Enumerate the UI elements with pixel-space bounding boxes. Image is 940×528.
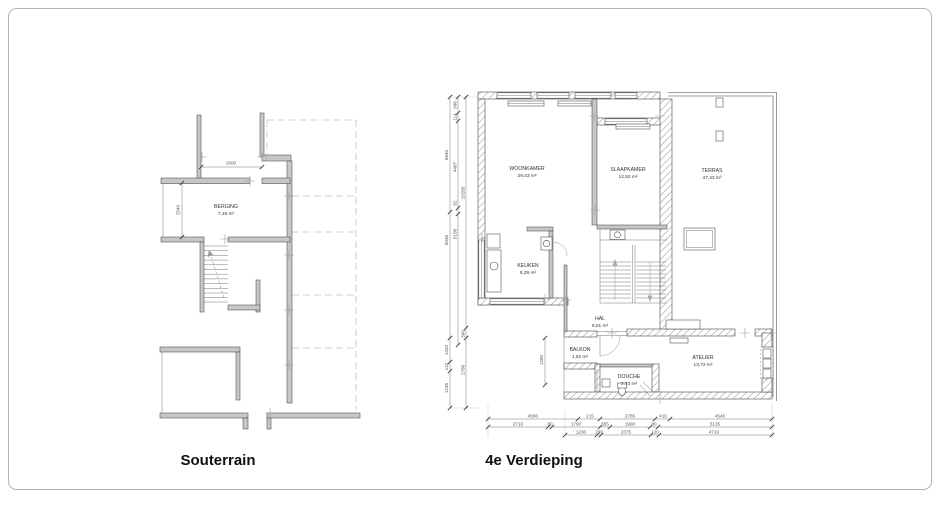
room-area-keuken: 8,29 m² — [520, 270, 537, 276]
room-label-woonkamer: WOONKAMER — [509, 166, 544, 172]
verdieping-walls — [478, 92, 772, 399]
architectural-drawing: 2600 2540 BERGING 7,16 m² Souterrain — [0, 0, 940, 528]
dim-b1-3: 410 — [659, 414, 667, 419]
souterrain-room-labels: BERGING 7,16 m² — [214, 204, 238, 217]
dim-b2-4: 1990 — [625, 422, 636, 427]
room-label-douche: DOUCHE — [618, 374, 641, 380]
dim-b1-4: 4546 — [715, 414, 726, 419]
drawing-sheet: 2600 2540 BERGING 7,16 m² Souterrain — [0, 0, 940, 528]
dim-lm-1: 114 — [453, 113, 458, 121]
verdieping-windows — [479, 93, 774, 380]
dim-lm-2: 4487 — [453, 161, 458, 172]
dim-lo-0: 5640 — [444, 149, 449, 160]
dim-balkon: 1280 — [539, 354, 544, 365]
dim-b2-6: 5135 — [710, 422, 721, 427]
verdieping-wall-marks — [477, 111, 776, 404]
room-label-atelier: ATELIER — [692, 355, 713, 361]
room-label-keuken: KEUKEN — [517, 263, 539, 269]
souterrain-wall-marks — [197, 152, 294, 418]
dim-b2-0: 2710 — [513, 422, 524, 427]
plan-title-verdieping: 4e Verdieping — [485, 452, 583, 469]
room-label-berging: BERGING — [214, 204, 238, 210]
room-area-balkon: 1,62 m² — [572, 354, 589, 360]
souterrain-dashed-outline — [267, 120, 356, 410]
plan-title-souterrain: Souterrain — [180, 452, 255, 469]
dim-b2-2: 1790 — [571, 422, 582, 427]
dim-lo-4: 1245 — [444, 382, 449, 393]
dim-li-0: 10285 — [461, 186, 466, 199]
radiators — [508, 101, 650, 129]
sheet-frame — [9, 9, 932, 490]
dim-souterrain-width: 2600 — [226, 161, 237, 166]
room-area-woonkamer: 29,43 m² — [518, 173, 537, 179]
dim-lm-4: 5108 — [453, 228, 458, 239]
dim-lo-2: 1420 — [444, 344, 449, 355]
dim-b3-2: 2375 — [621, 430, 632, 435]
room-label-balkon: BALKON — [569, 347, 590, 353]
dim-lm-0: 996 — [453, 101, 458, 109]
dim-b3-4: 4710 — [709, 430, 720, 435]
room-area-terras: 47,43 m² — [703, 175, 722, 181]
dim-b2-5: 80 — [651, 422, 657, 427]
dim-b1-0: 4580 — [528, 414, 539, 419]
room-area-atelier: 13,72 m² — [694, 362, 713, 368]
dim-b3-3: 120 — [651, 430, 659, 435]
room-area-douche: 2,73 m² — [621, 381, 638, 387]
dim-lo-3: 122 — [444, 362, 449, 370]
verdieping-plan: 4580 215 2785 410 4546 2710 80 1790 355 … — [444, 92, 777, 469]
room-label-hal: HAL — [595, 316, 605, 322]
souterrain-plan: 2600 2540 BERGING 7,16 m² Souterrain — [160, 113, 360, 469]
room-area-slaapkamer: 12,52 m² — [619, 174, 638, 180]
room-area-berging: 7,16 m² — [218, 211, 235, 217]
verdieping-room-labels: WOONKAMER 29,43 m² SLAAPKAMER 12,52 m² T… — [509, 166, 723, 387]
dim-b3-1: 290 — [595, 430, 603, 435]
dim-lm-3: 82 — [453, 200, 458, 206]
terras-items — [684, 98, 723, 250]
dim-b1-2: 2785 — [625, 414, 636, 419]
dim-lo-1: 5035 — [444, 234, 449, 245]
room-label-terras: TERRAS — [701, 168, 723, 174]
souterrain-stairs — [204, 246, 228, 302]
room-area-hal: 9,01 m² — [592, 323, 609, 329]
dim-li-1: 390 — [461, 330, 466, 338]
verdieping-stairs — [600, 229, 667, 303]
dim-b2-3: 355 — [601, 422, 609, 427]
dim-souterrain-height: 2540 — [176, 204, 181, 215]
souterrain-walls — [160, 113, 360, 429]
dim-b3-0: 1230 — [576, 430, 587, 435]
room-label-slaapkamer: SLAAPKAMER — [610, 167, 645, 173]
dim-b2-1: 80 — [547, 422, 553, 427]
dim-b1-1: 215 — [586, 414, 594, 419]
souterrain-dimensions: 2600 2540 — [176, 161, 265, 240]
dim-li-2: 2786 — [461, 364, 466, 375]
